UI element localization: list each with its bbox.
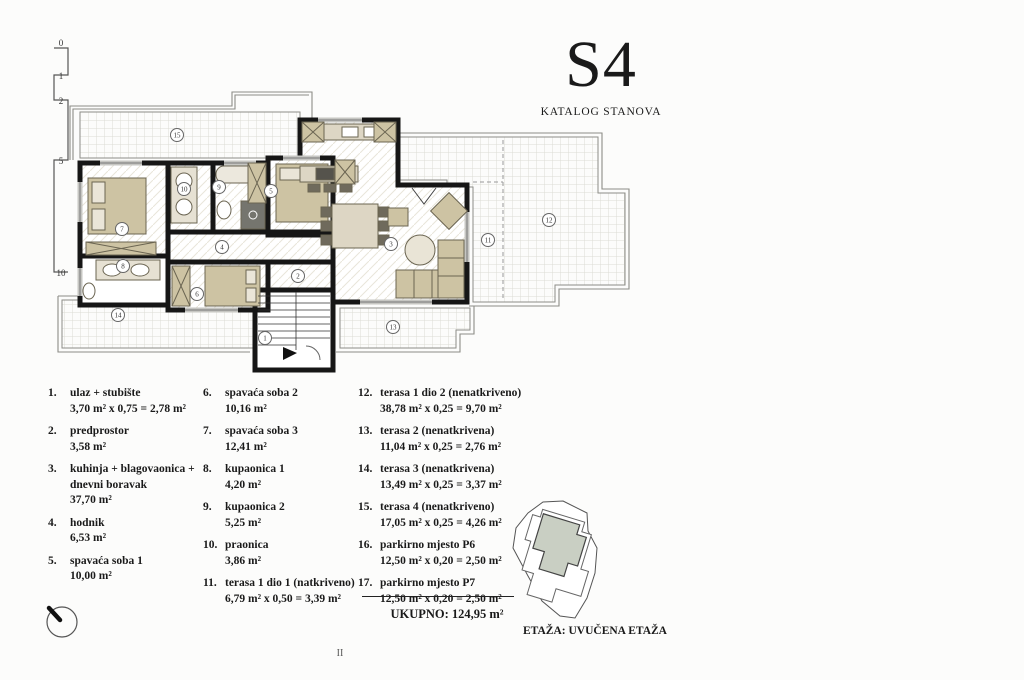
site-plan (505, 483, 680, 623)
svg-text:9: 9 (217, 184, 221, 192)
legend-item: 6.spavaća soba 210,16 m² (203, 386, 363, 417)
legend-item-number: 16. (358, 538, 380, 569)
room-label-13: 13 (387, 321, 400, 334)
legend-item-name: terasa 1 dio 1 (natkriveno) (225, 576, 363, 592)
svg-text:5: 5 (269, 188, 273, 196)
scale-tick-10: 10 (57, 268, 67, 278)
room-label-7: 7 (116, 223, 129, 236)
legend-item-number: 4. (48, 516, 70, 547)
svg-text:7: 7 (120, 226, 124, 234)
scale-bar: 012510 (54, 38, 68, 278)
legend-item-number: 7. (203, 424, 225, 455)
svg-text:11: 11 (485, 237, 492, 245)
legend-item: 12.terasa 1 dio 2 (nenatkriveno)38,78 m²… (358, 386, 536, 417)
legend-item-area: 3,70 m² x 0,75 = 2,78 m² (70, 402, 206, 418)
room-label-10: 10 (178, 183, 191, 196)
legend-item: 10.praonica3,86 m² (203, 538, 363, 569)
legend-item: 5.spavaća soba 110,00 m² (48, 554, 206, 585)
legend-item-number: 3. (48, 462, 70, 509)
legend-item-name: spavaća soba 2 (225, 386, 363, 402)
legend-item-name: spavaća soba 1 (70, 554, 206, 570)
svg-text:2: 2 (296, 273, 300, 281)
legend-item-area: 3,86 m² (225, 554, 363, 570)
legend-item-area: 6,53 m² (70, 531, 206, 547)
room-label-3: 3 (385, 238, 398, 251)
legend-column-2: 6.spavaća soba 210,16 m²7.spavaća soba 3… (203, 386, 363, 614)
legend-item-area: 5,25 m² (225, 516, 363, 532)
legend-item-number: 12. (358, 386, 380, 417)
legend-item-name: predprostor (70, 424, 206, 440)
legend-item-name: praonica (225, 538, 363, 554)
room-label-2: 2 (292, 270, 305, 283)
legend-column-1: 1.ulaz + stubište3,70 m² x 0,75 = 2,78 m… (48, 386, 206, 592)
legend-item: 7.spavaća soba 312,41 m² (203, 424, 363, 455)
toilet-2 (83, 283, 95, 299)
legend-item-name: kupaonica 2 (225, 500, 363, 516)
legend-item-name: terasa 3 (nenatkrivena) (380, 462, 536, 478)
legend-item-area: 38,78 m² x 0,25 = 9,70 m² (380, 402, 536, 418)
legend-item-name: terasa 2 (nenatkrivena) (380, 424, 536, 440)
svg-text:1: 1 (263, 335, 267, 343)
svg-text:8: 8 (121, 263, 125, 271)
room-label-8: 8 (117, 260, 130, 273)
legend-item: 1.ulaz + stubište3,70 m² x 0,75 = 2,78 m… (48, 386, 206, 417)
legend-item-number: 13. (358, 424, 380, 455)
legend-item-area: 3,58 m² (70, 440, 206, 456)
legend-item-area: 10,16 m² (225, 402, 363, 418)
room-label-1: 1 (259, 332, 272, 345)
svg-text:3: 3 (389, 241, 393, 249)
legend-item-number: 2. (48, 424, 70, 455)
legend-item-number: 8. (203, 462, 225, 493)
terrace-4 (80, 112, 300, 158)
svg-text:14: 14 (115, 312, 123, 320)
legend-item: 2.predprostor3,58 m² (48, 424, 206, 455)
legend-item-number: 5. (48, 554, 70, 585)
dining-table (332, 204, 378, 248)
svg-text:6: 6 (195, 291, 199, 299)
room-label-6: 6 (191, 288, 204, 301)
total-divider (362, 596, 514, 597)
shower (241, 201, 265, 229)
legend-item-name: kuhinja + blagovaonica + dnevni boravak (70, 462, 206, 493)
room-label-11: 11 (482, 234, 495, 247)
svg-text:15: 15 (174, 132, 182, 140)
svg-text:4: 4 (220, 244, 224, 252)
total-label: UKUPNO: (390, 607, 448, 621)
room-label-9: 9 (213, 181, 226, 194)
legend-item: 13.terasa 2 (nenatkrivena)11,04 m² x 0,2… (358, 424, 536, 455)
legend-item-name: hodnik (70, 516, 206, 532)
legend-item-number: 15. (358, 500, 380, 531)
room-label-4: 4 (216, 241, 229, 254)
legend-item-area: 12,41 m² (225, 440, 363, 456)
legend-item-name: spavaća soba 3 (225, 424, 363, 440)
scale-tick-1: 1 (59, 71, 64, 81)
legend-item: 11.terasa 1 dio 1 (natkriveno)6,79 m² x … (203, 576, 363, 607)
legend-item-name: terasa 1 dio 2 (nenatkriveno) (380, 386, 536, 402)
legend-item: 9.kupaonica 25,25 m² (203, 500, 363, 531)
legend-item-area: 6,79 m² x 0,50 = 3,39 m² (225, 592, 363, 608)
legend-item-number: 14. (358, 462, 380, 493)
scale-tick-2: 2 (59, 96, 64, 106)
north-compass-icon (38, 598, 88, 648)
toilet (217, 201, 231, 219)
legend-item-number: 9. (203, 500, 225, 531)
svg-text:13: 13 (390, 324, 398, 332)
legend-item-number: 1. (48, 386, 70, 417)
legend-item-number: 6. (203, 386, 225, 417)
legend-item: 3.kuhinja + blagovaonica + dnevni borava… (48, 462, 206, 509)
svg-text:12: 12 (546, 217, 554, 225)
legend-item-number: 11. (203, 576, 225, 607)
room-label-14: 14 (112, 309, 125, 322)
svg-text:10: 10 (181, 186, 189, 194)
storey-caption: ETAŽA: UVUČENA ETAŽA (510, 625, 680, 637)
legend-item-number: 17. (358, 576, 380, 607)
scale-tick-0: 0 (59, 38, 64, 48)
tv-cabinet (388, 208, 408, 226)
terrace-2 (340, 308, 470, 348)
room-label-5: 5 (265, 185, 278, 198)
legend-item-name: kupaonica 1 (225, 462, 363, 478)
legend-item: 8.kupaonica 14,20 m² (203, 462, 363, 493)
scale-tick-5: 5 (59, 156, 64, 166)
total-value: 124,95 m² (452, 607, 504, 621)
room-label-12: 12 (543, 214, 556, 227)
legend-item-area: 4,20 m² (225, 478, 363, 494)
legend-item-area: 10,00 m² (70, 569, 206, 585)
page-number: II (315, 648, 365, 659)
rug (405, 235, 435, 265)
legend-item-area: 37,70 m² (70, 493, 206, 509)
legend-item: 4.hodnik6,53 m² (48, 516, 206, 547)
floor-plan-drawing: 012510 (0, 0, 680, 390)
legend-item-number: 10. (203, 538, 225, 569)
legend-item-name: ulaz + stubište (70, 386, 206, 402)
room-label-15: 15 (171, 129, 184, 142)
legend-item-area: 11,04 m² x 0,25 = 2,76 m² (380, 440, 536, 456)
